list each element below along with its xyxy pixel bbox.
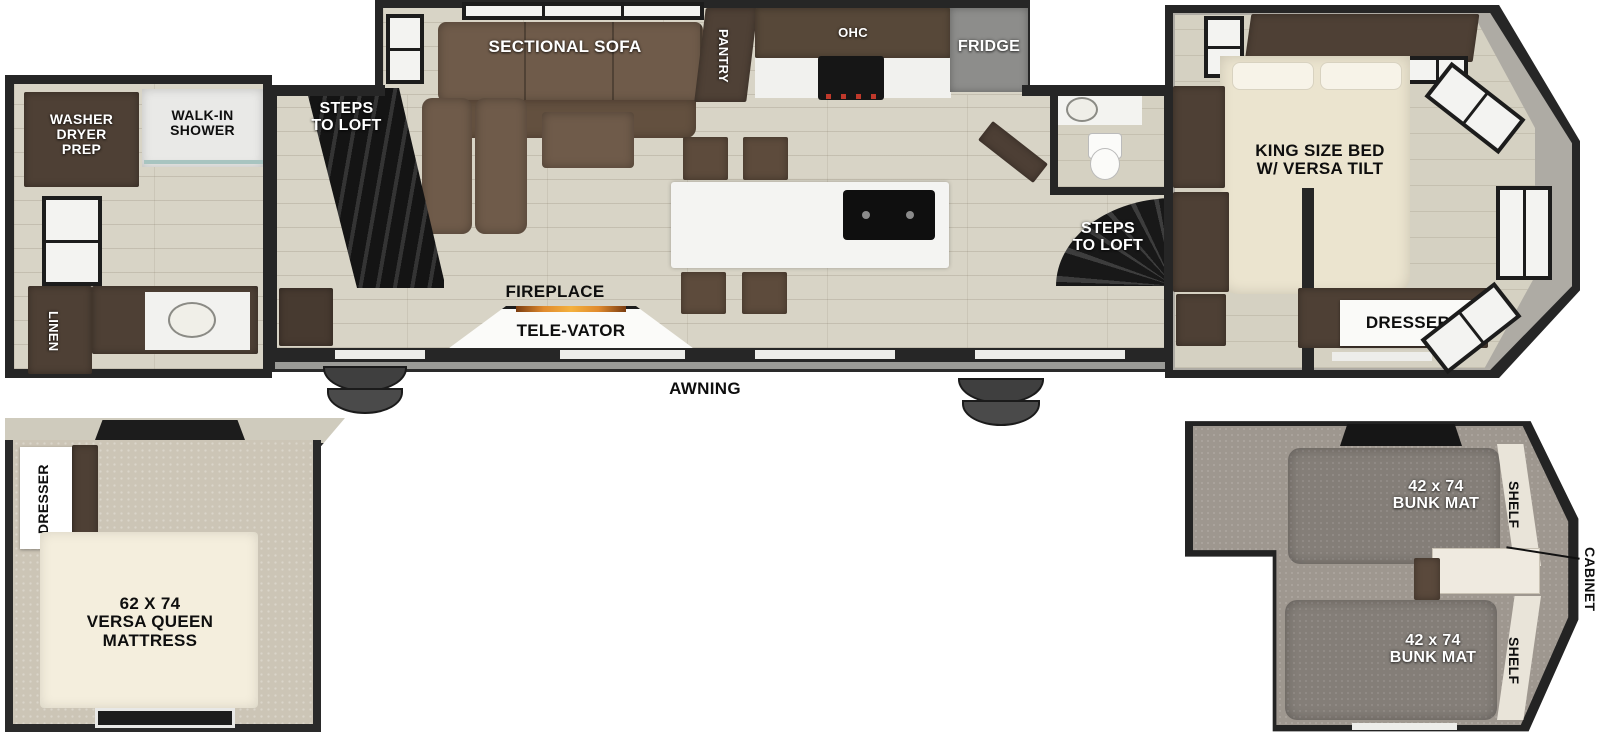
stove-knobs — [826, 94, 876, 99]
linen-cabinet — [28, 286, 92, 374]
bed-pillow — [1320, 62, 1402, 90]
fireplace-flame-icon — [516, 306, 626, 312]
loft-cabinet-box — [1414, 558, 1440, 600]
island-sink-icon — [843, 190, 935, 240]
island-chair — [683, 137, 728, 180]
washer-dryer-prep-cabinet — [24, 92, 139, 187]
shower-glass — [144, 160, 263, 164]
sofa-chaise-2 — [475, 98, 527, 234]
entry-steps — [327, 388, 403, 414]
bathroom-window — [42, 196, 102, 286]
loft-cabinet — [1432, 548, 1540, 594]
entry-door-opening — [975, 350, 1125, 359]
slideout-left-window — [386, 14, 424, 84]
sink-faucet-dots — [862, 211, 870, 219]
slideout-window-band — [462, 2, 704, 20]
wall-left — [267, 85, 277, 372]
bottom-window-opening — [755, 350, 895, 359]
bedroom-wardrobe — [1176, 294, 1226, 346]
awning-rail — [275, 362, 1168, 372]
wall-top-left — [267, 85, 385, 96]
wall-top-right — [1022, 85, 1174, 96]
cap-window-middle — [1496, 186, 1552, 280]
toilet-bowl-icon — [1090, 148, 1120, 180]
ohc-cabinet — [755, 8, 951, 58]
queen-bottom-window — [95, 708, 235, 728]
bedroom-bottom-window — [1332, 352, 1432, 361]
bedroom-wardrobe — [1173, 192, 1229, 292]
sink-icon — [168, 302, 216, 338]
headboard-cabinet — [1245, 14, 1480, 62]
loft-bottom-window — [1352, 723, 1457, 730]
bunk-mat-top — [1288, 448, 1500, 564]
bed-pillow — [1232, 62, 1314, 90]
king-bed — [1220, 56, 1410, 294]
queen-mattress — [40, 532, 258, 708]
sofa-chaise-1 — [422, 98, 472, 234]
island-chair — [681, 272, 726, 314]
entry-cabinet — [279, 288, 333, 346]
cabinet-label: CABINET — [1582, 522, 1597, 637]
island-chair — [742, 272, 787, 314]
bottom-window-opening — [560, 350, 685, 359]
fridge — [950, 8, 1028, 92]
mid-bath-sink-icon — [1066, 97, 1098, 122]
entry-steps — [962, 400, 1040, 426]
entry-door-opening — [335, 350, 425, 359]
awning-label: AWNING — [640, 380, 770, 398]
sectional-sofa-back — [438, 22, 703, 102]
queen-loft-top-window — [95, 420, 245, 440]
bunk-mat-bottom — [1285, 600, 1497, 720]
walk-in-shower — [142, 89, 263, 167]
rv-floorplan: WASHER DRYER PREP WALK-IN SHOWER LINEN S… — [0, 0, 1600, 740]
island-chair — [743, 137, 788, 180]
loft-skylight — [1340, 424, 1462, 446]
ottoman — [542, 112, 634, 168]
bedroom-wardrobe — [1173, 86, 1225, 188]
